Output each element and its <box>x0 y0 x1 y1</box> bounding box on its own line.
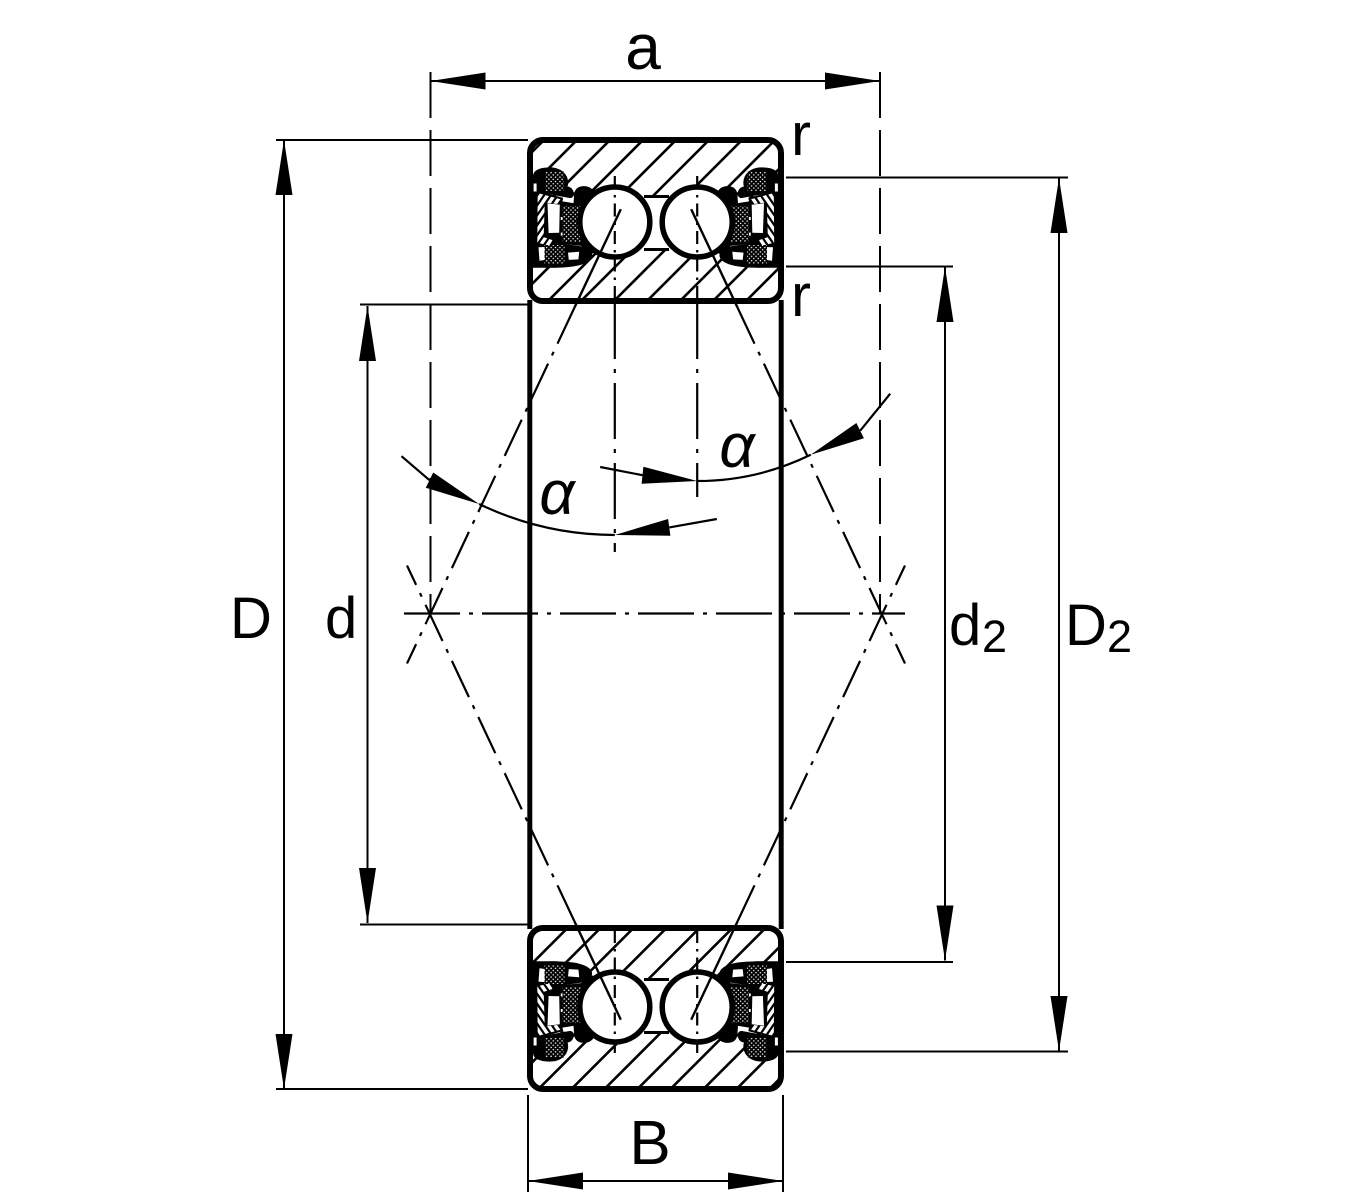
svg-text:B: B <box>629 1109 670 1178</box>
svg-text:d: d <box>949 593 981 658</box>
svg-text:d: d <box>325 586 357 651</box>
svg-text:r: r <box>791 101 811 168</box>
svg-text:a: a <box>625 11 661 83</box>
svg-text:2: 2 <box>982 611 1007 662</box>
svg-text:2: 2 <box>1107 611 1132 662</box>
svg-text:D: D <box>230 586 272 651</box>
svg-text:α: α <box>719 412 756 481</box>
svg-text:α: α <box>539 459 576 528</box>
svg-text:D: D <box>1065 593 1107 658</box>
svg-text:r: r <box>791 262 811 329</box>
